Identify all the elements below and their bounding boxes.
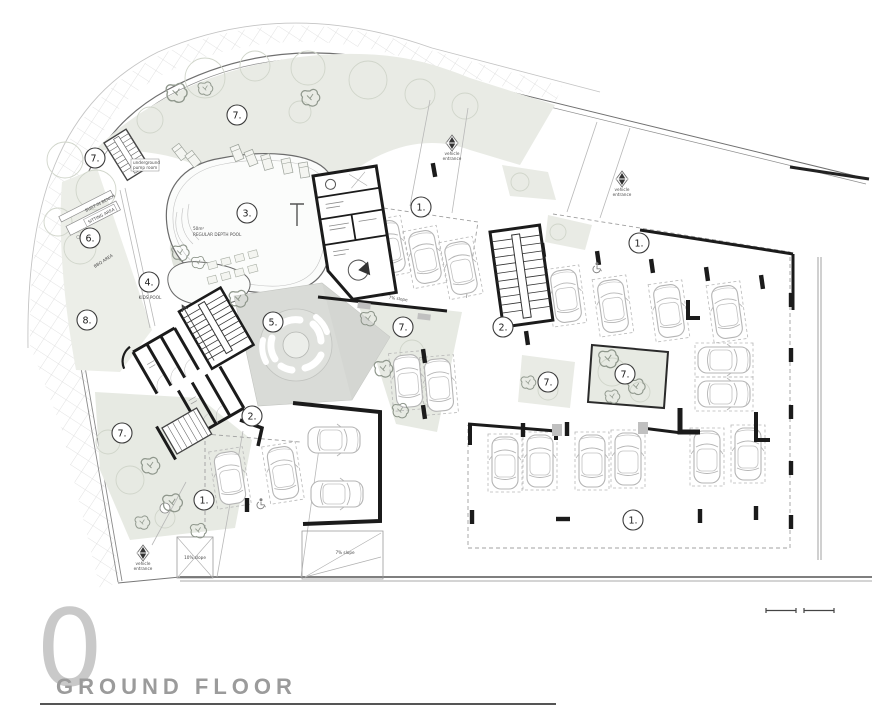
car-icon xyxy=(650,283,689,339)
ramps xyxy=(177,531,383,579)
car-icon xyxy=(440,239,481,296)
site-plan-drawing: vehicle entrance vehicle entrance vehicl… xyxy=(0,0,872,710)
floor-plan-page: { "title_block": { "floor_number": "0", … xyxy=(0,0,872,710)
svg-text:2.: 2. xyxy=(247,412,256,423)
entrance-label: entrance xyxy=(443,156,462,161)
car-icon xyxy=(404,228,445,285)
vehicle-entrance-2: vehicle entrance xyxy=(613,171,632,197)
car-icon xyxy=(691,431,723,483)
area-marker: 1. xyxy=(623,510,643,530)
area-marker: 5. xyxy=(263,312,283,332)
svg-text:8.: 8. xyxy=(82,316,91,327)
area-marker: 7. xyxy=(615,364,635,384)
slope-label-ramp-large: 7% slope xyxy=(335,550,355,555)
car-icon xyxy=(594,278,633,334)
area-marker: 3. xyxy=(237,203,257,223)
stair-core-right xyxy=(490,225,553,327)
slope-label-driveway: 7% slope xyxy=(388,295,408,303)
svg-text:4.: 4. xyxy=(144,278,153,289)
svg-text:1.: 1. xyxy=(416,203,425,214)
vehicle-entrance-3: vehicle entrance xyxy=(134,545,153,571)
svg-text:1.: 1. xyxy=(634,239,643,250)
area-marker: 6. xyxy=(80,228,100,248)
svg-text:2.: 2. xyxy=(498,323,507,334)
area-marker: 4. xyxy=(139,272,159,292)
car-icon xyxy=(732,428,764,480)
car-icon xyxy=(708,284,747,340)
area-marker: 7. xyxy=(538,372,558,392)
car-icon xyxy=(698,344,750,376)
title-underline xyxy=(40,703,556,705)
svg-text:5.: 5. xyxy=(268,318,277,329)
green-pocket-2 xyxy=(545,215,592,250)
area-marker: 7. xyxy=(85,148,105,168)
car-icon xyxy=(524,435,556,487)
svg-text:7.: 7. xyxy=(117,429,126,440)
area-marker: 2. xyxy=(242,406,262,426)
svg-text:7.: 7. xyxy=(90,154,99,165)
pump-room-label: underground pump room xyxy=(131,159,160,171)
scale-bar xyxy=(766,608,834,613)
area-marker: 1. xyxy=(629,233,649,253)
car-icon xyxy=(308,424,360,456)
car-icon xyxy=(698,378,750,410)
pool-label: REGULAR DEPTH POOL xyxy=(193,232,242,237)
svg-text:7.: 7. xyxy=(232,111,241,122)
svg-text:1.: 1. xyxy=(199,496,208,507)
car-icon xyxy=(489,437,521,489)
building-center-top xyxy=(313,166,396,302)
svg-text:pump room: pump room xyxy=(133,165,157,170)
pool-label: 50m² xyxy=(193,226,204,231)
area-marker: 7. xyxy=(227,105,247,125)
area-marker: 7. xyxy=(393,317,413,337)
car-icon xyxy=(311,478,363,510)
entrance-label: entrance xyxy=(134,566,153,571)
svg-text:7.: 7. xyxy=(398,323,407,334)
svg-text:6.: 6. xyxy=(85,234,94,245)
area-marker: 1. xyxy=(411,197,431,217)
car-icon xyxy=(612,433,644,485)
area-marker: 1. xyxy=(194,490,214,510)
area-marker: 8. xyxy=(77,310,97,330)
svg-text:7.: 7. xyxy=(620,370,629,381)
kids-pool-label: KIDS POOL xyxy=(139,295,162,300)
slope-label-ramp-small: 10% slope xyxy=(184,555,206,560)
entrance-label: entrance xyxy=(613,192,632,197)
svg-text:7.: 7. xyxy=(543,378,552,389)
svg-text:1.: 1. xyxy=(628,516,637,527)
area-marker: 7. xyxy=(112,423,132,443)
accessible-parking-icon xyxy=(257,498,265,508)
car-icon xyxy=(576,435,608,487)
area-marker: 2. xyxy=(493,317,513,337)
page-title: GROUND FLOOR xyxy=(56,674,297,700)
svg-text:3.: 3. xyxy=(242,209,251,220)
